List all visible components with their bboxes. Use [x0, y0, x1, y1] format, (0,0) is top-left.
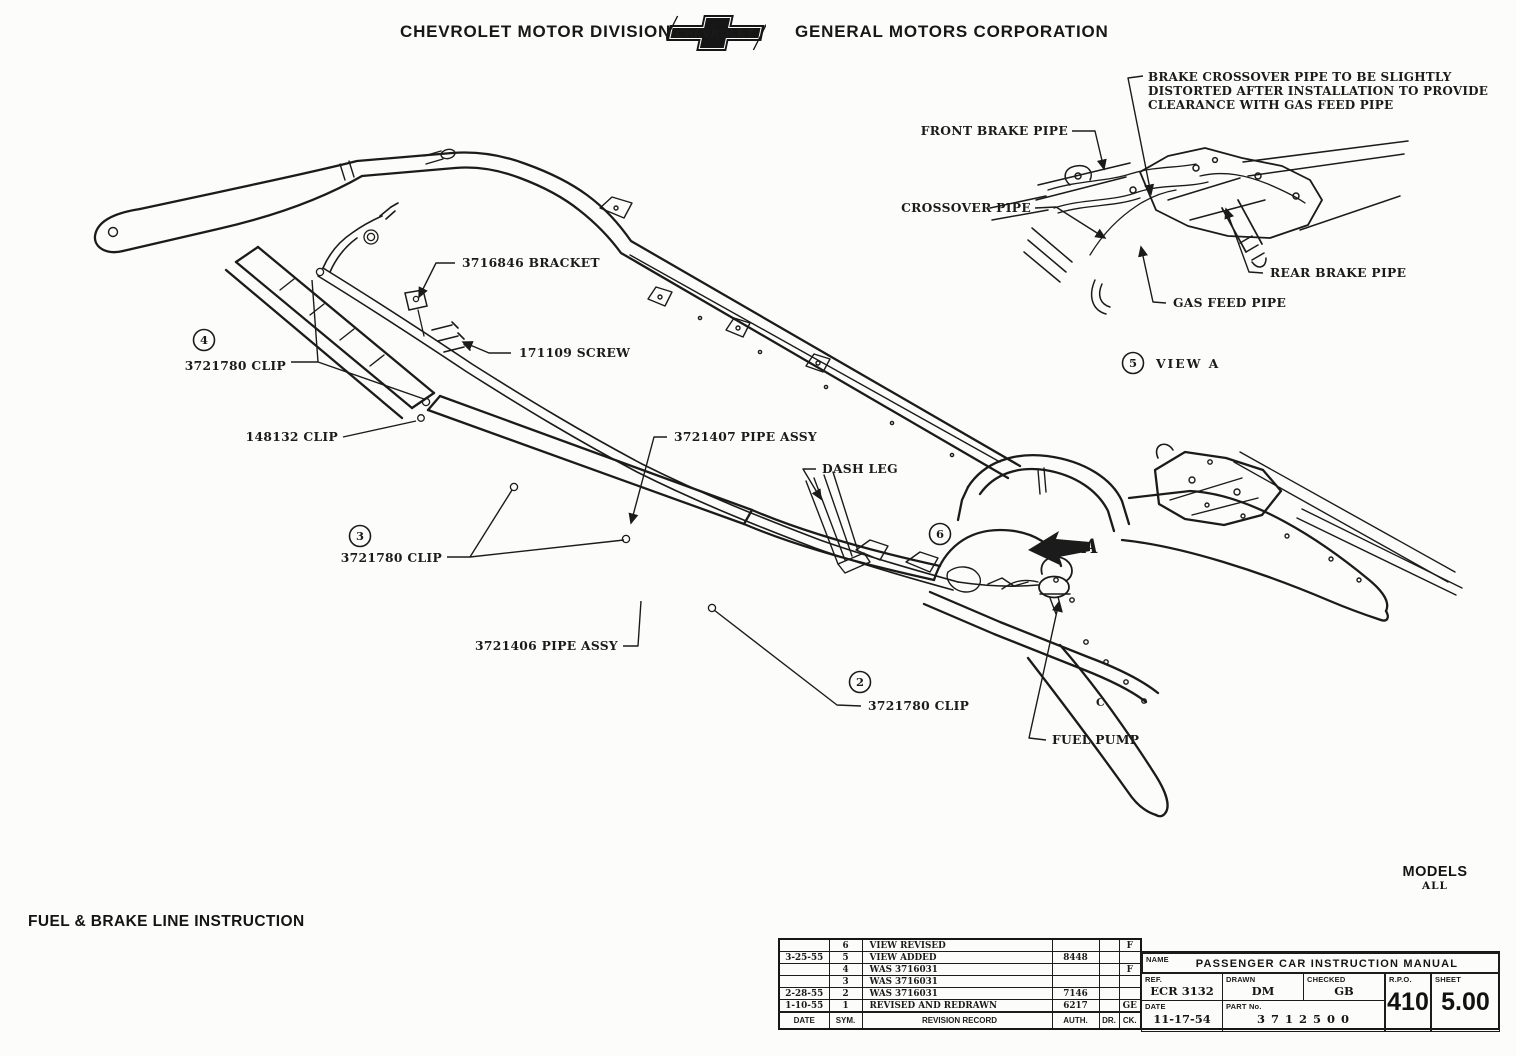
technical-drawing-canvas: A C 4 3 2 6 5 3716846 BRACKET 171109 SCR… — [0, 0, 1516, 1056]
revision-cell — [1099, 939, 1119, 952]
circled-number-2: 2 — [856, 675, 864, 689]
view-a-note-line-3: CLEARANCE WITH GAS FEED PIPE — [1148, 98, 1393, 112]
part-value: 3 7 1 2 5 0 0 — [1223, 1012, 1384, 1026]
direction-arrow-label: A — [1081, 534, 1099, 558]
view-a-note-line-1: BRAKE CROSSOVER PIPE TO BE SLIGHTLY — [1148, 70, 1452, 84]
sheet-value: 5.00 — [1432, 988, 1499, 1017]
frame-letter-c: C — [1096, 696, 1105, 709]
revision-cell: GE — [1119, 1000, 1141, 1013]
revision-cell: 1 — [829, 1000, 862, 1013]
callout-screw: 171109 SCREW — [519, 345, 630, 360]
checked-label: CHECKED — [1307, 975, 1346, 984]
revision-table-header-row: DATESYM.REVISION RECORDAUTH.DR.CK. — [779, 1012, 1141, 1029]
revision-row: 3WAS 3716031 — [779, 976, 1141, 988]
chassis-detail-art — [109, 148, 1463, 703]
title-block-part-cell: PART No. 3 7 1 2 5 0 0 — [1222, 1000, 1385, 1032]
callout-dash-leg: DASH LEG — [822, 461, 898, 476]
name-label: NAME — [1146, 955, 1169, 964]
revision-cell — [1119, 952, 1141, 964]
revision-cell — [1119, 976, 1141, 988]
revision-cell — [1099, 988, 1119, 1000]
revision-cell: F — [1119, 964, 1141, 976]
circled-number-5: 5 — [1129, 356, 1137, 370]
revision-header-cell: CK. — [1119, 1012, 1141, 1029]
callout-pipe-assy-3721406: 3721406 PIPE ASSY — [475, 638, 618, 653]
view-a-caption: VIEW A — [1155, 356, 1220, 371]
part-label: PART No. — [1226, 1002, 1262, 1011]
revision-cell: 6 — [829, 939, 862, 952]
revision-cell: WAS 3716031 — [862, 988, 1052, 1000]
revision-cell — [1099, 964, 1119, 976]
title-block-name-cell: NAME PASSENGER CAR INSTRUCTION MANUAL — [1141, 952, 1500, 974]
chassis-line-art — [95, 152, 1388, 816]
callout-fuel-pump: FUEL PUMP — [1052, 732, 1139, 747]
revision-cell — [1099, 1000, 1119, 1013]
drawn-label: DRAWN — [1226, 975, 1255, 984]
revision-row: 3-25-555VIEW ADDED8448 — [779, 952, 1141, 964]
models-label: MODELS — [1395, 864, 1475, 880]
revision-cell: 7146 — [1052, 988, 1099, 1000]
revision-cell: WAS 3716031 — [862, 976, 1052, 988]
revision-cell — [779, 964, 829, 976]
sheet-label: SHEET — [1435, 975, 1461, 984]
revision-cell: REVISED AND REDRAWN — [862, 1000, 1052, 1013]
title-block-rpo-cell: R.P.O. 410 — [1384, 973, 1431, 1032]
ref-value: ECR 3132 — [1142, 984, 1222, 998]
title-block: NAME PASSENGER CAR INSTRUCTION MANUAL RE… — [1140, 951, 1500, 1030]
revision-cell: 5 — [829, 952, 862, 964]
revision-cell: 3-25-55 — [779, 952, 829, 964]
revision-header-cell: DR. — [1099, 1012, 1119, 1029]
revision-cell — [779, 976, 829, 988]
ref-label: REF. — [1145, 975, 1162, 984]
callout-rear-brake-pipe: REAR BRAKE PIPE — [1270, 265, 1406, 280]
revision-cell: 2 — [829, 988, 862, 1000]
revision-cell — [1099, 976, 1119, 988]
revision-cell: 8448 — [1052, 952, 1099, 964]
leader-lines — [291, 76, 1263, 740]
rpo-value: 410 — [1386, 988, 1430, 1017]
drawn-value: DM — [1223, 984, 1303, 998]
name-value: PASSENGER CAR INSTRUCTION MANUAL — [1177, 958, 1477, 970]
revision-header-cell: DATE — [779, 1012, 829, 1029]
revision-header-cell: SYM. — [829, 1012, 862, 1029]
title-block-checked-cell: CHECKED GB — [1303, 973, 1385, 1001]
callout-labels: 3716846 BRACKET 171109 SCREW 3721780 CLI… — [185, 255, 1140, 747]
revision-cell — [1099, 952, 1119, 964]
callout-gas-feed-pipe: GAS FEED PIPE — [1173, 295, 1286, 310]
checked-value: GB — [1304, 984, 1384, 998]
callout-clip-1: 3721780 CLIP — [185, 358, 286, 373]
circled-number-6: 6 — [936, 527, 944, 541]
revision-cell — [1052, 964, 1099, 976]
models-value: ALL — [1395, 880, 1475, 892]
callout-bracket: 3716846 BRACKET — [462, 255, 600, 270]
revision-row: 4WAS 3716031F — [779, 964, 1141, 976]
date-value: 11-17-54 — [1142, 1012, 1222, 1026]
circled-numbers — [194, 330, 1144, 693]
revision-header-cell: REVISION RECORD — [862, 1012, 1052, 1029]
view-a-note-line-2: DISTORTED AFTER INSTALLATION TO PROVIDE — [1148, 84, 1488, 98]
sheet-title: FUEL & BRAKE LINE INSTRUCTION — [28, 913, 305, 931]
title-block-sheet-cell: SHEET 5.00 — [1430, 973, 1500, 1032]
callout-clip-2: 3721780 CLIP — [341, 550, 442, 565]
callout-crossover-pipe: CROSSOVER PIPE — [901, 200, 1031, 215]
revision-row: 2-28-552WAS 37160317146 — [779, 988, 1141, 1000]
revision-row: 1-10-551REVISED AND REDRAWN6217GE — [779, 1000, 1141, 1013]
date-label: DATE — [1145, 1002, 1166, 1011]
revision-header-cell: AUTH. — [1052, 1012, 1099, 1029]
revision-cell — [1119, 988, 1141, 1000]
revision-cell — [779, 939, 829, 952]
revision-cell: F — [1119, 939, 1141, 952]
circled-number-3: 3 — [356, 529, 364, 543]
title-block-drawn-cell: DRAWN DM — [1222, 973, 1304, 1001]
revision-cell: VIEW ADDED — [862, 952, 1052, 964]
revision-cell: WAS 3716031 — [862, 964, 1052, 976]
callout-clip-3: 3721780 CLIP — [868, 698, 969, 713]
revision-cell: 6217 — [1052, 1000, 1099, 1013]
revision-cell — [1052, 976, 1099, 988]
direction-arrow — [1028, 531, 1090, 566]
models-block: MODELS ALL — [1395, 864, 1475, 892]
revision-row: 6VIEW REVISEDF — [779, 939, 1141, 952]
view-a-line-art — [990, 141, 1408, 314]
revision-cell — [1052, 939, 1099, 952]
callout-front-brake-pipe: FRONT BRAKE PIPE — [921, 123, 1068, 138]
revision-table: 6VIEW REVISEDF3-25-555VIEW ADDED84484WAS… — [778, 938, 1142, 1030]
revision-cell: 4 — [829, 964, 862, 976]
callout-clip-148132: 148132 CLIP — [246, 429, 338, 444]
revision-cell: 3 — [829, 976, 862, 988]
revision-cell: 2-28-55 — [779, 988, 829, 1000]
revision-cell: VIEW REVISED — [862, 939, 1052, 952]
circled-number-4: 4 — [200, 333, 208, 347]
title-block-ref-cell: REF. ECR 3132 — [1141, 973, 1223, 1001]
drawing-sheet: CHEVROLET MOTOR DIVISION CHEVROLET GENER… — [0, 0, 1516, 1056]
rpo-label: R.P.O. — [1389, 975, 1412, 984]
title-block-date-cell: DATE 11-17-54 — [1141, 1000, 1223, 1032]
revision-cell: 1-10-55 — [779, 1000, 829, 1013]
view-a-labels: BRAKE CROSSOVER PIPE TO BE SLIGHTLY DIST… — [901, 70, 1488, 371]
callout-pipe-assy-3721407: 3721407 PIPE ASSY — [674, 429, 817, 444]
